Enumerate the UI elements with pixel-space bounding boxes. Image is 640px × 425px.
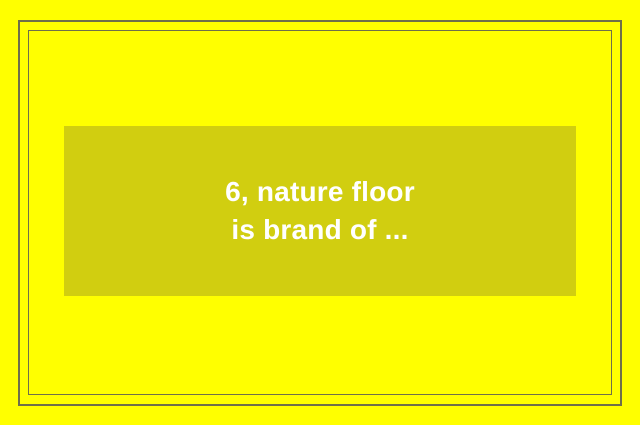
question-line-2: is brand of ... <box>231 211 408 249</box>
question-line-1: 6, nature floor <box>225 173 415 211</box>
question-card: 6, nature floor is brand of ... <box>64 126 576 296</box>
